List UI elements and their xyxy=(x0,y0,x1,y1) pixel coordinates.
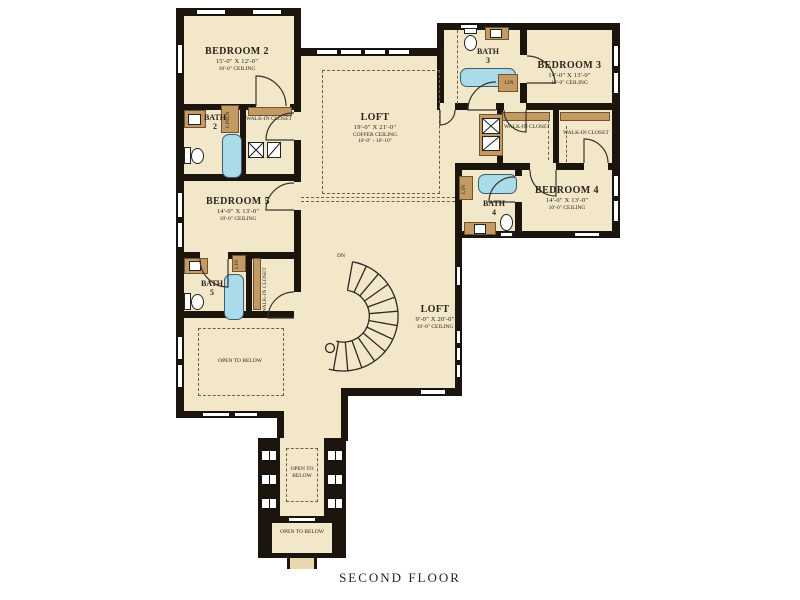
sink-icon xyxy=(189,261,201,271)
room-dims: 14'-0" X 13'-0" xyxy=(510,197,624,205)
floor-plan: LINEN LIN LIN LIN xyxy=(0,0,800,600)
label-lin: LIN xyxy=(234,257,241,272)
window xyxy=(364,49,386,55)
room-number: 4 xyxy=(470,209,518,218)
wall xyxy=(277,411,284,441)
window xyxy=(456,330,461,344)
room-name: LOFT xyxy=(315,112,435,124)
closet-shelf xyxy=(502,112,550,121)
label-walkin-closet: WALK-IN CLOSET xyxy=(562,130,610,137)
label-bath5: BATH 5 xyxy=(188,280,236,298)
label-bath4: BATH 4 xyxy=(470,200,518,218)
room-ceiling: 10'-0" CEILING xyxy=(179,216,297,223)
plan-title: SECOND FLOOR xyxy=(300,570,500,586)
toilet-icon xyxy=(464,28,477,34)
label-bedroom3: BEDROOM 3 14'-0" X 13'-0" 10'-0" CEILING xyxy=(512,60,627,86)
room-ceiling-type: COFFER CEILING xyxy=(315,132,435,139)
room-ceiling: 10'-0" CEILING xyxy=(395,324,475,331)
toilet-icon xyxy=(191,148,204,164)
ceiling-break-line xyxy=(301,197,455,202)
window xyxy=(316,49,338,55)
wall xyxy=(176,8,301,16)
door-opening xyxy=(440,103,455,110)
bathtub-icon xyxy=(222,134,242,178)
balcony-column xyxy=(327,474,343,485)
label-open-to-below: OPEN TO BELOW xyxy=(283,466,321,480)
cabinet-slash-icon xyxy=(482,136,500,151)
room-ceiling: 10'-0" CEILING xyxy=(510,205,624,212)
room-dims: 14'-0" X 13'-0" xyxy=(512,72,627,80)
window xyxy=(177,364,183,388)
room-number: 5 xyxy=(188,289,236,298)
window xyxy=(388,49,410,55)
room-dims: 9'-0" X 20'-0" xyxy=(395,316,475,324)
cabinet-slash-icon xyxy=(267,142,281,158)
door-opening xyxy=(294,112,301,140)
window xyxy=(202,412,230,417)
cabinet-x-icon xyxy=(482,118,500,134)
window xyxy=(196,9,226,15)
label-bath3: BATH 3 xyxy=(462,48,514,66)
wall xyxy=(176,411,284,418)
label-bedroom4: BEDROOM 4 14'-0" X 13'-0" 10'-0" CEILING xyxy=(510,185,624,211)
closet-shelf xyxy=(253,258,261,310)
room-dims: 15'-0" X 12'-0" xyxy=(177,58,297,66)
label-storage: STORAGE xyxy=(440,36,447,88)
room-name: LOFT xyxy=(395,304,475,316)
label-walkin-closet: WALK-IN CLOSET xyxy=(262,262,284,318)
label-stairs-down: DN xyxy=(332,253,350,260)
wall xyxy=(341,388,348,441)
wall xyxy=(437,103,620,110)
window xyxy=(177,336,183,360)
label-bath2: BATH 2 xyxy=(190,114,240,132)
balcony-column xyxy=(261,474,277,485)
wall xyxy=(246,252,252,318)
window xyxy=(420,389,446,395)
window xyxy=(456,266,461,286)
label-loft-upper: LOFT 19'-0" X 21'-0" COFFER CEILING 10'-… xyxy=(315,112,435,145)
room-name: BEDROOM 4 xyxy=(510,185,624,197)
door-opening xyxy=(584,163,608,170)
closet-shelf xyxy=(248,107,292,116)
door-opening xyxy=(294,292,301,318)
window xyxy=(288,517,316,522)
window xyxy=(574,232,600,237)
storage-dash-line xyxy=(457,30,458,104)
room-name: BEDROOM 2 xyxy=(177,46,297,58)
balcony-column xyxy=(327,498,343,509)
room-ceiling: 10'-0" CEILING xyxy=(512,80,627,87)
floor-balcony-corridor xyxy=(284,388,341,441)
door-opening xyxy=(468,103,496,110)
balcony-column xyxy=(261,498,277,509)
closet-shelf xyxy=(560,112,610,121)
room-number: 3 xyxy=(462,57,514,66)
door-opening xyxy=(530,163,556,170)
sink-icon xyxy=(490,29,502,38)
linen-closet: LIN xyxy=(232,255,246,272)
room-name: BEDROOM 3 xyxy=(512,60,627,72)
room-number: 2 xyxy=(190,123,240,132)
label-walkin-closet: WALK-IN CLOSET xyxy=(504,124,550,131)
label-lin: LIN xyxy=(461,178,468,200)
label-open-to-below: OPEN TO BELOW xyxy=(200,358,280,365)
balcony-column xyxy=(261,450,277,461)
window xyxy=(234,412,258,417)
window xyxy=(456,364,461,378)
toilet-icon xyxy=(184,147,191,164)
room-ceiling: 10'-0" CEILING xyxy=(177,66,297,73)
room-ceiling: 10'-0" - 10'-10" xyxy=(315,138,435,145)
room-name: BEDROOM 5 xyxy=(179,196,297,208)
window xyxy=(177,222,183,248)
label-bedroom5: BEDROOM 5 14'-0" X 13'-0" 10'-0" CEILING xyxy=(179,196,297,222)
cabinet-x-icon xyxy=(248,142,264,158)
label-open-to-below: OPEN TO BELOW xyxy=(276,529,328,536)
door-opening xyxy=(504,103,526,110)
linen-closet: LIN xyxy=(459,176,473,200)
balcony-stub xyxy=(287,558,317,569)
room-dims: 14'-0" X 13'-0" xyxy=(179,208,297,216)
window xyxy=(340,49,362,55)
lower-balcony-floor xyxy=(272,523,332,553)
label-bedroom2: BEDROOM 2 15'-0" X 12'-0" 10'-0" CEILING xyxy=(177,46,297,72)
wall xyxy=(553,110,559,163)
room-dims: 19'-0" X 21'-0" xyxy=(315,124,435,132)
balcony-column xyxy=(327,450,343,461)
window xyxy=(252,9,282,15)
label-loft-lower: LOFT 9'-0" X 20'-0" 10'-0" CEILING xyxy=(395,304,475,330)
label-walkin-closet: WALK-IN CLOSET xyxy=(246,116,292,123)
toilet-icon xyxy=(500,232,513,237)
window xyxy=(456,347,461,361)
sink-icon xyxy=(474,224,486,234)
